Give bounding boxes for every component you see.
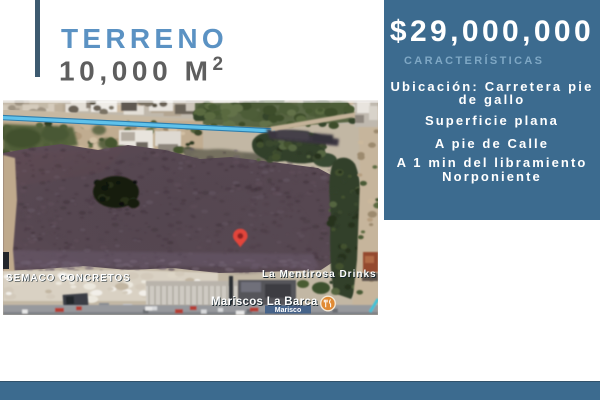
svg-text:La Mentirosa Drinks: La Mentirosa Drinks [262, 269, 377, 280]
svg-text:SEMACO CONCRETOS: SEMACO CONCRETOS [6, 273, 131, 284]
svg-text:Marisco: Marisco [275, 307, 301, 314]
